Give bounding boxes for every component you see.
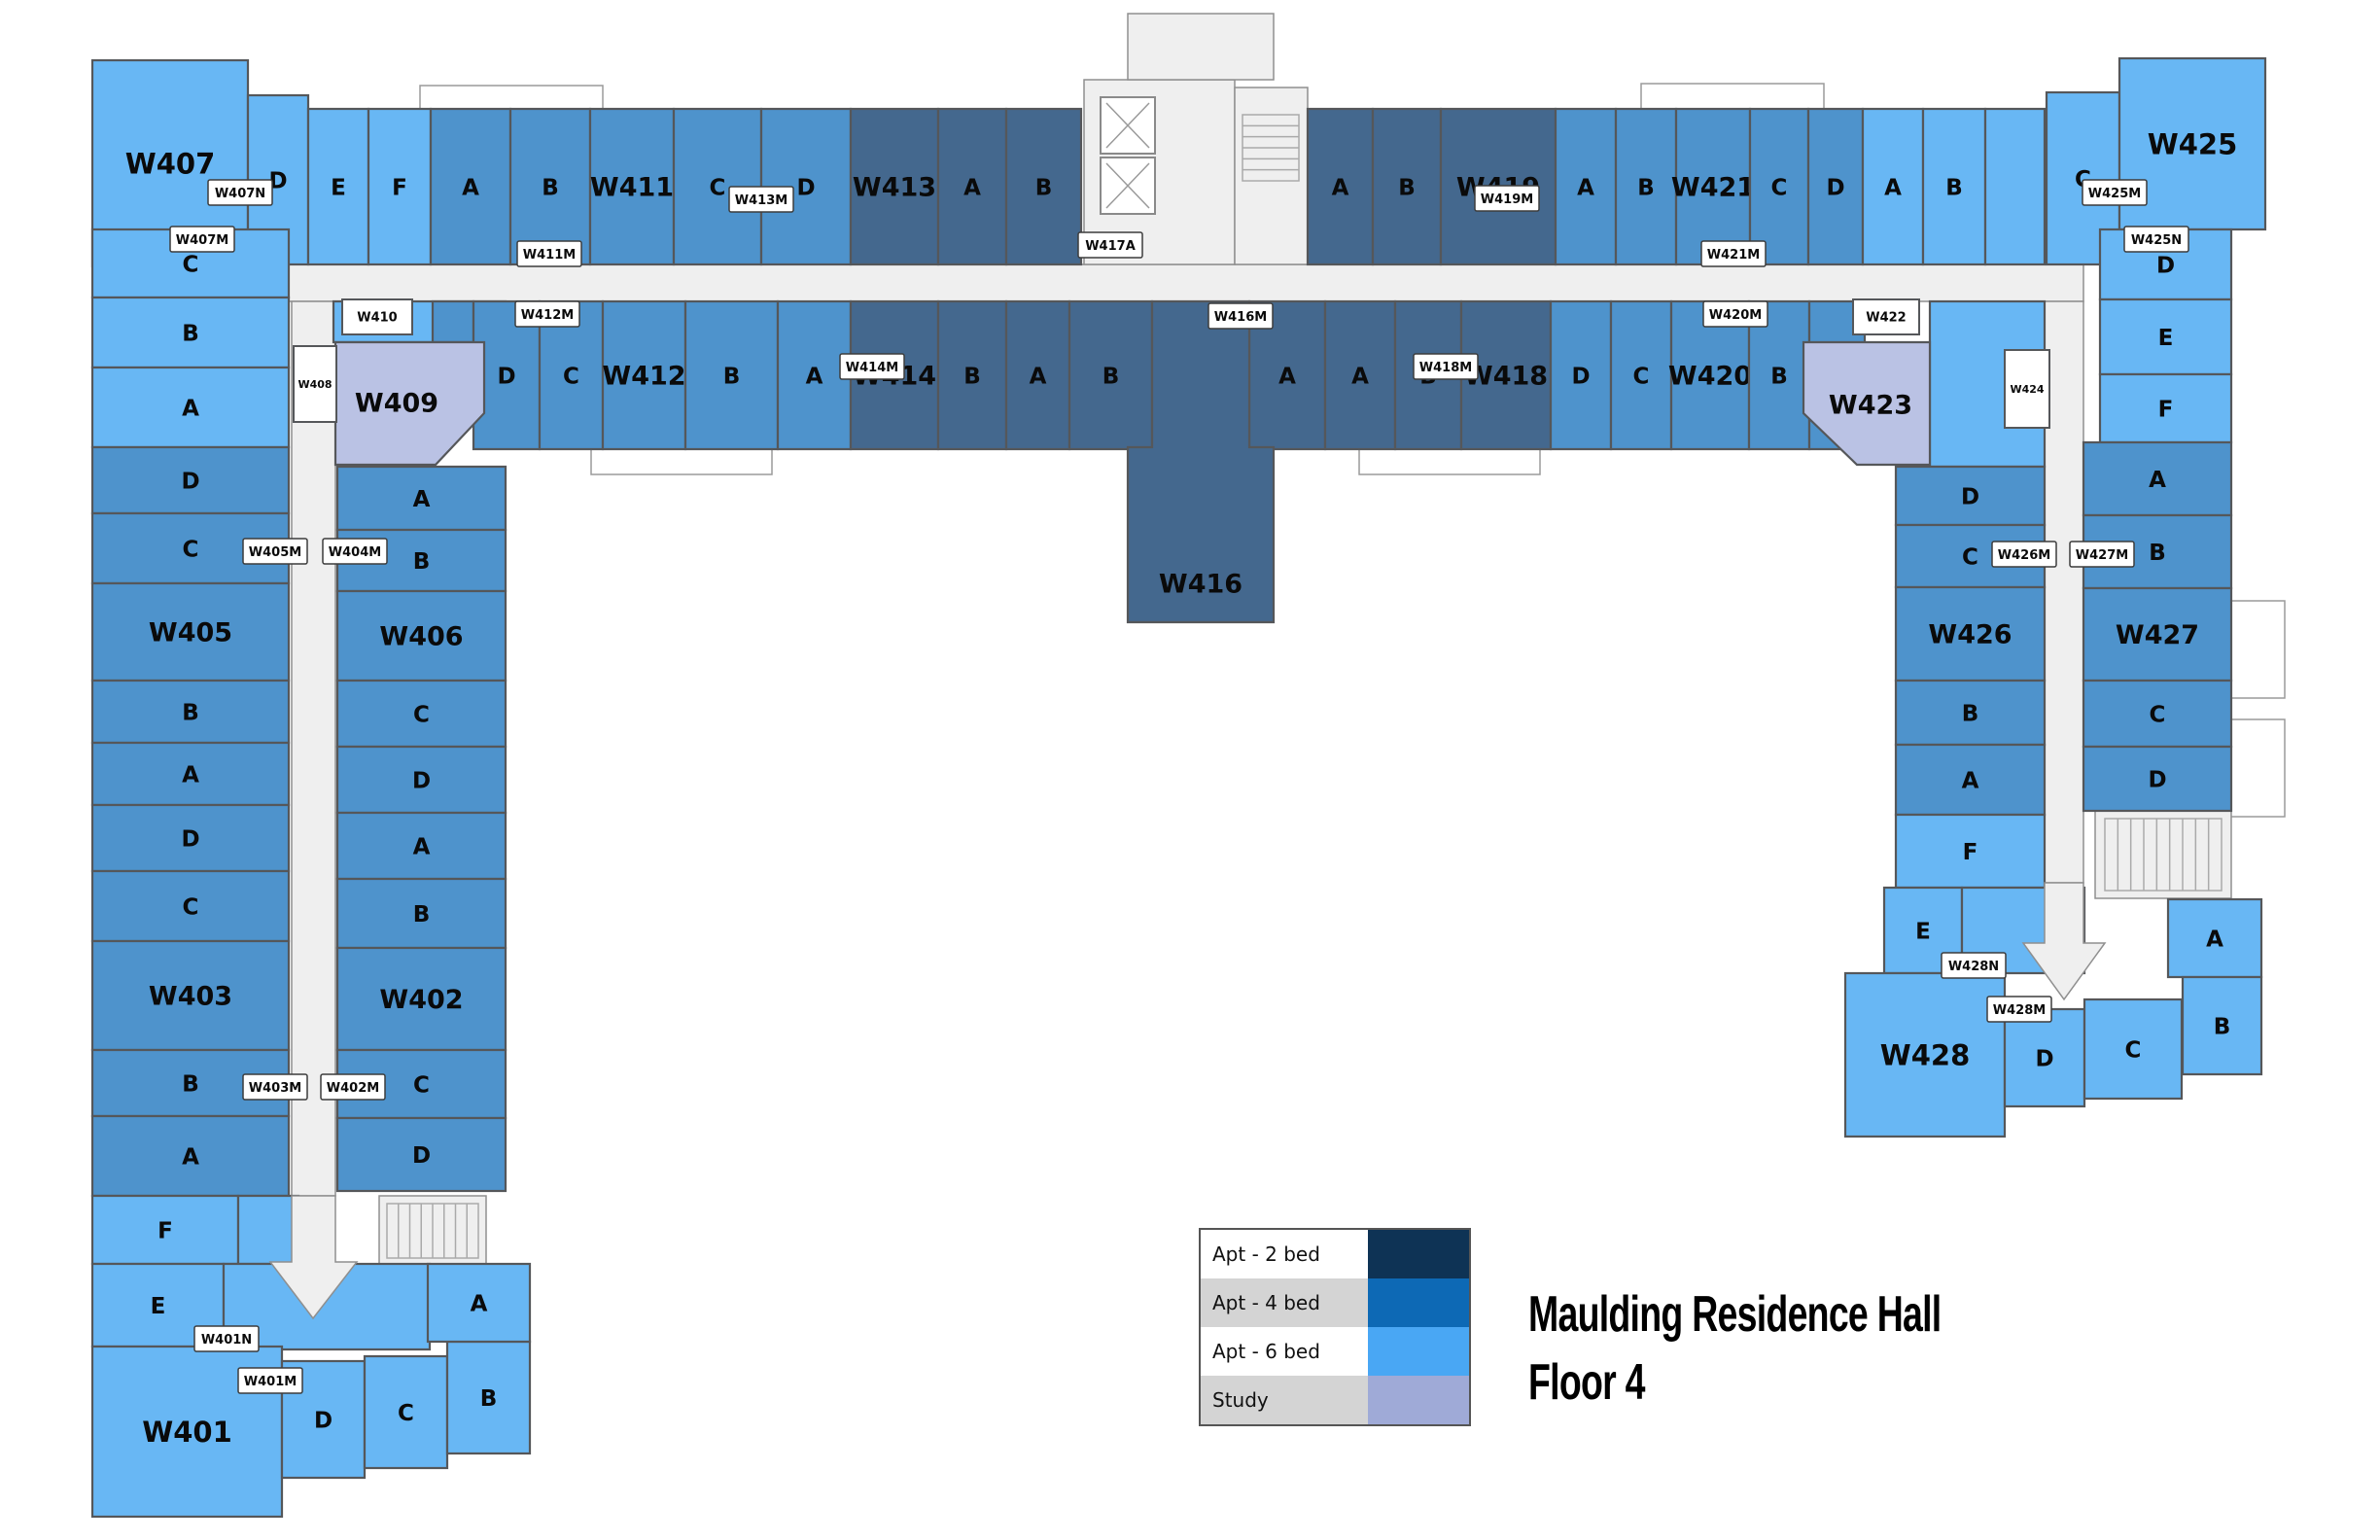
unit-label-W416: W416	[1159, 570, 1242, 600]
room-label-W427: B	[2149, 541, 2166, 566]
room-label-W403: B	[182, 1071, 199, 1097]
room-label-W425: B	[1945, 175, 1963, 200]
room-label-W411: A	[462, 175, 479, 200]
chip-label-W403M: W403M	[249, 1081, 301, 1096]
bay-window	[2230, 719, 2285, 817]
chip-label-W412M: W412M	[521, 308, 574, 323]
title-line-1: Maulding Residence Hall	[1528, 1280, 1941, 1348]
chip-label-W426M: W426M	[1998, 548, 2050, 563]
room-label-W407: E	[331, 175, 346, 200]
room-label-W426: D	[1961, 484, 1979, 509]
room-label-W421: C	[1771, 175, 1788, 200]
room-label-W420: D	[1571, 364, 1590, 389]
room-label-W401: C	[398, 1401, 414, 1426]
room-label-W413: A	[963, 175, 981, 200]
room-label-W405: B	[182, 700, 199, 725]
room-label-W401: D	[314, 1408, 332, 1433]
chip-label-W425M: W425M	[2088, 187, 2141, 201]
room-area	[433, 301, 473, 342]
room-label-W411: C	[710, 175, 726, 200]
room-label-W419: A	[1332, 175, 1349, 200]
room-label-W425: D	[2156, 253, 2175, 278]
room-label-W407: A	[182, 396, 199, 421]
legend-label: Apt - 6 bed	[1201, 1327, 1368, 1376]
room-label-W406: B	[413, 549, 431, 575]
room-label-W428: F	[1963, 840, 1978, 865]
room-label-W427: A	[2149, 468, 2166, 493]
chip-label-W407N: W407N	[215, 187, 265, 201]
chip-label-W419M: W419M	[1481, 192, 1533, 207]
room-label-W421: B	[1637, 175, 1655, 200]
room-W401	[238, 1196, 298, 1264]
legend: Apt - 2 bedApt - 4 bedApt - 6 bedStudy	[1199, 1228, 1471, 1426]
room-label-W428: D	[2035, 1046, 2053, 1071]
room-label-W428: E	[1915, 919, 1931, 944]
bay-window	[591, 449, 772, 474]
room-label-W428: B	[2214, 1014, 2231, 1039]
core-vestibule	[1128, 14, 1274, 80]
chip-label-W417A: W417A	[1085, 239, 1136, 254]
room-label-W420: C	[1633, 364, 1650, 389]
floor-plan: W407DEFABW411CDW413ABABW419ABW421CDABCW4…	[0, 0, 2380, 1540]
legend-row-apt-2-bed: Apt - 2 bed	[1201, 1230, 1469, 1278]
unit-label-W413: W413	[853, 173, 936, 203]
room-label-W401: E	[151, 1294, 166, 1319]
legend-row-apt-6-bed: Apt - 6 bed	[1201, 1327, 1469, 1376]
chip-label-W401M: W401M	[244, 1375, 297, 1389]
room-label-W406: A	[413, 487, 431, 512]
chip-label-W420M: W420M	[1709, 308, 1762, 323]
room-label-W414: A	[1030, 364, 1047, 389]
unit-label-W401: W401	[142, 1416, 232, 1449]
chip-label-W407M: W407M	[176, 233, 228, 248]
room-label-W405: D	[181, 469, 199, 494]
room-label-W412: D	[497, 364, 515, 389]
corridor-top	[289, 264, 2083, 301]
room-label-W418: A	[1351, 364, 1369, 389]
room-label-W405: A	[182, 762, 199, 787]
unit-label-W412: W412	[602, 362, 685, 392]
chip-label-W427M: W427M	[2076, 548, 2128, 563]
page-title: Maulding Residence Hall Floor 4	[1528, 1280, 1941, 1417]
unit-label-W428: W428	[1880, 1038, 1971, 1071]
room-label-W402: A	[413, 834, 431, 859]
room-label-W407: B	[182, 321, 199, 346]
legend-row-study: Study	[1201, 1376, 1469, 1424]
room-label-W425: E	[2158, 326, 2174, 351]
chip-label-W428M: W428M	[1993, 1003, 2046, 1018]
room-label-W411: B	[542, 175, 559, 200]
unit-label-W409: W409	[355, 389, 438, 419]
room-label-W421: D	[1826, 175, 1844, 200]
legend-label: Apt - 4 bed	[1201, 1278, 1368, 1327]
legend-label: Study	[1201, 1376, 1368, 1424]
room-label-W421: A	[1577, 175, 1594, 200]
unit-label-W421: W421	[1671, 173, 1755, 203]
room-label-W407: C	[183, 252, 199, 277]
room-label-W402: C	[413, 1072, 430, 1098]
room-label-W401: B	[480, 1386, 498, 1412]
room-label-W426: C	[1962, 544, 1978, 570]
room-label-W407: F	[392, 175, 407, 200]
room-label-W428: C	[2125, 1037, 2142, 1063]
unit-label-W402: W402	[379, 985, 463, 1015]
room-label-W416: B	[1102, 364, 1120, 389]
legend-label: Apt - 2 bed	[1201, 1230, 1368, 1278]
legend-swatch	[1368, 1376, 1469, 1424]
room-label-W426: B	[1962, 701, 1979, 726]
room-label-W403: D	[181, 826, 199, 852]
unit-label-W423: W423	[1829, 391, 1912, 421]
service-room-label-W424: W424	[2010, 383, 2044, 396]
legend-row-apt-4-bed: Apt - 4 bed	[1201, 1278, 1469, 1327]
title-line-2: Floor 4	[1528, 1348, 1941, 1417]
room-label-W413: B	[1035, 175, 1053, 200]
floorplan-page: W407DEFABW411CDW413ABABW419ABW421CDABCW4…	[0, 0, 2380, 1540]
room-label-W426: A	[1962, 768, 1979, 793]
room-label-W401: F	[157, 1218, 173, 1243]
chip-label-W421M: W421M	[1707, 248, 1760, 262]
room-label-W425: A	[1884, 175, 1902, 200]
legend-swatch	[1368, 1230, 1469, 1278]
chip-label-W402M: W402M	[327, 1081, 379, 1096]
room-label-W414: B	[963, 364, 981, 389]
room-label-W427: C	[2150, 702, 2166, 727]
room-label-W425: F	[2158, 397, 2174, 422]
chip-label-W401N: W401N	[201, 1333, 252, 1347]
unit-label-W420: W420	[1668, 362, 1752, 392]
room-label-W416: A	[1278, 364, 1296, 389]
unit-label-W407: W407	[125, 147, 216, 180]
room-label-W412: A	[806, 364, 823, 389]
service-room-label-W422: W422	[1866, 311, 1906, 326]
chip-label-W413M: W413M	[735, 193, 787, 208]
room-label-W428: A	[2206, 927, 2223, 952]
room-label-W412: B	[723, 364, 741, 389]
unit-label-W426: W426	[1928, 620, 2012, 650]
unit-label-W405: W405	[149, 618, 232, 648]
chip-label-W411M: W411M	[523, 248, 576, 262]
bay-window	[1359, 449, 1540, 474]
room-label-W419: B	[1398, 175, 1416, 200]
legend-swatch	[1368, 1327, 1469, 1376]
room-label-W406: C	[413, 702, 430, 727]
chip-label-W428N: W428N	[1948, 960, 1999, 974]
unit-label-W403: W403	[149, 982, 232, 1012]
room-label-W402: D	[412, 1143, 431, 1169]
room-label-W411: D	[796, 175, 815, 200]
room-label-W412: C	[563, 364, 579, 389]
chip-label-W416M: W416M	[1214, 310, 1267, 325]
chip-label-W414M: W414M	[846, 361, 898, 375]
chip-label-W405M: W405M	[249, 545, 301, 560]
room-label-W401: A	[471, 1291, 488, 1316]
room-label-W405: C	[183, 537, 199, 562]
unit-label-W425: W425	[2148, 127, 2238, 160]
room-label-W406: D	[412, 768, 431, 793]
chip-label-W418M: W418M	[1419, 361, 1472, 375]
unit-label-W427: W427	[2116, 620, 2199, 650]
unit-label-W406: W406	[379, 622, 463, 652]
room-label-W420: B	[1770, 364, 1788, 389]
legend-swatch	[1368, 1278, 1469, 1327]
service-room-label-W408: W408	[297, 378, 332, 391]
room-label-W427: D	[2148, 767, 2166, 792]
room-label-W402: B	[413, 902, 431, 927]
chip-label-W425N: W425N	[2131, 233, 2182, 248]
service-room-label-W410: W410	[357, 311, 397, 326]
bay-window	[1641, 84, 1824, 109]
room-label-W403: A	[182, 1144, 199, 1170]
room-W425	[1985, 109, 2045, 264]
chip-label-W404M: W404M	[329, 545, 381, 560]
room-label-W403: C	[183, 894, 199, 920]
stair-room-right	[2095, 811, 2231, 898]
corridor-left-wing	[292, 301, 335, 1196]
bay-window	[420, 86, 603, 111]
unit-label-W411: W411	[590, 173, 674, 203]
bay-window	[2230, 601, 2285, 698]
